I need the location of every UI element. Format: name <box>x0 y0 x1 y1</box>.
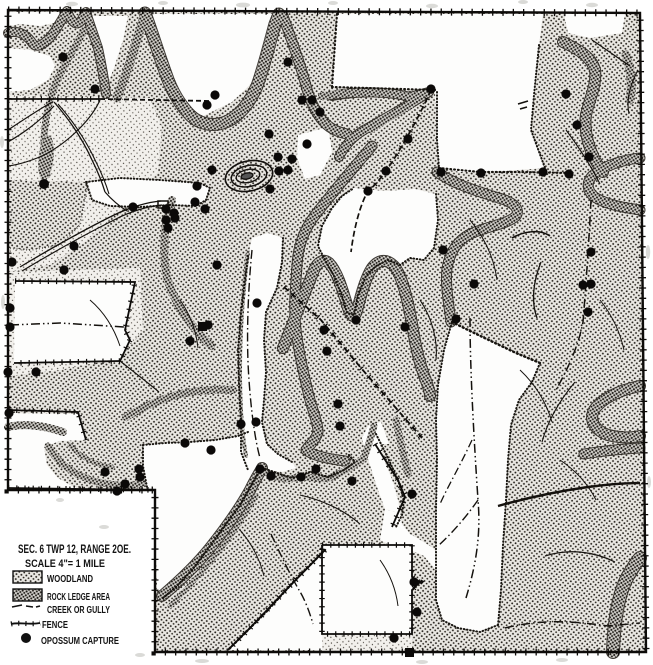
svg-text:SCALE 4"= 1 MILE: SCALE 4"= 1 MILE <box>25 558 105 570</box>
svg-text:SEC. 6 TWP 12, RANGE 2OE.: SEC. 6 TWP 12, RANGE 2OE. <box>18 544 131 556</box>
svg-text:ROCK LEDGE AREA: ROCK LEDGE AREA <box>47 592 110 603</box>
svg-text:OPOSSUM CAPTURE: OPOSSUM CAPTURE <box>41 636 119 647</box>
svg-text:FENCE: FENCE <box>42 620 68 631</box>
svg-text:CREEK OR GULLY: CREEK OR GULLY <box>47 605 110 616</box>
svg-text:WOODLAND: WOODLAND <box>47 574 93 585</box>
